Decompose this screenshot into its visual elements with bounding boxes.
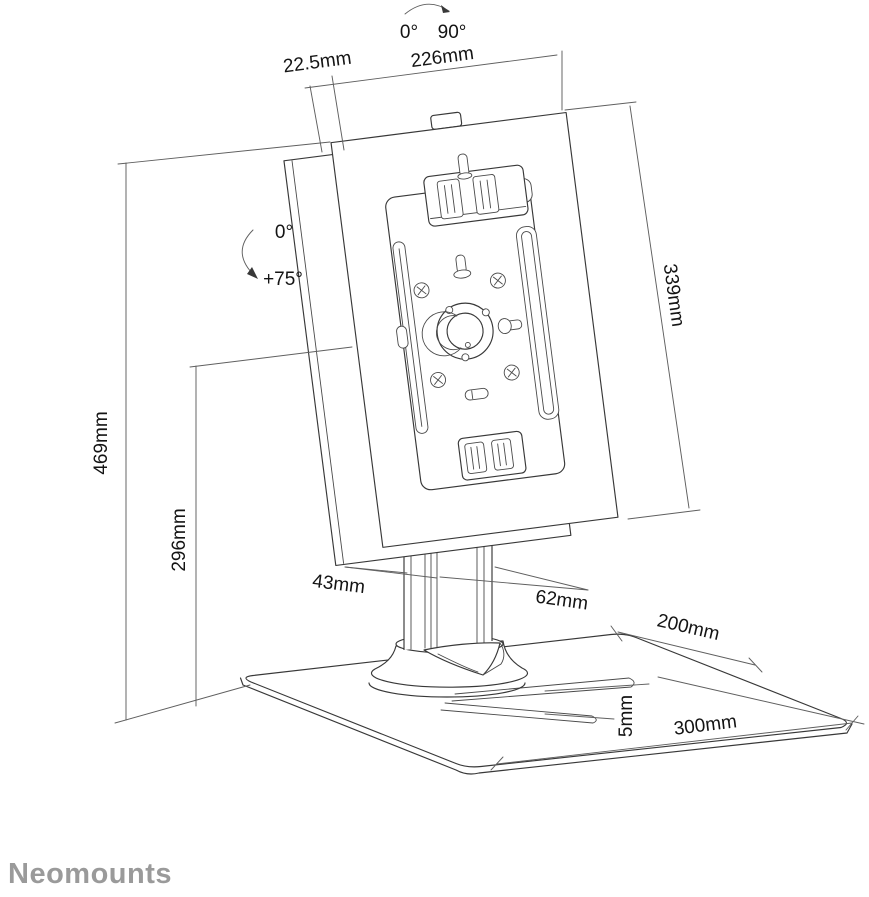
bottom-clamp-grip xyxy=(491,438,514,470)
pole xyxy=(404,540,492,650)
swivel-arrowhead xyxy=(441,5,450,13)
dim-225-tick xyxy=(310,86,322,152)
dim-label-pole-depth: 43mm xyxy=(311,571,366,598)
stand-diagram: 0° 90° 0° +75° 22.5mm 226mm 339mm 469mm … xyxy=(0,0,869,897)
dim-300-tick xyxy=(846,716,858,730)
dim-339-ext-bottom xyxy=(628,510,700,519)
base-plate-top-face xyxy=(246,634,847,767)
baseline-extension xyxy=(115,685,250,723)
dim-225-tick xyxy=(332,76,344,150)
dim-label-pole-width: 62mm xyxy=(534,586,589,614)
tilt-from-label: 0° xyxy=(275,222,293,243)
dim-label-base-thickness: 5mm xyxy=(616,695,637,737)
dim-label-enclosure-width: 226mm xyxy=(410,43,476,72)
tilt-arc xyxy=(242,230,256,277)
flange-bump xyxy=(461,353,469,361)
flange-bump xyxy=(482,308,490,316)
technical-drawing-page: 0° 90° 0° +75° 22.5mm 226mm 339mm 469mm … xyxy=(0,0,869,897)
brand-logo: Neomounts xyxy=(8,858,172,891)
tilt-to-label: +75° xyxy=(263,269,303,290)
dim-label-enclosure-depth: 22.5mm xyxy=(282,48,353,78)
swivel-to-label: 90° xyxy=(438,22,467,43)
dim-200-tick xyxy=(749,658,762,672)
bottom-clamp xyxy=(458,431,527,481)
pole-body xyxy=(404,540,492,650)
dim-339-ext-top xyxy=(565,102,636,110)
bottom-clamp-grip xyxy=(464,442,487,474)
base-plate xyxy=(241,634,853,774)
tablet-enclosure xyxy=(281,99,620,566)
top-clamp-grip xyxy=(473,174,500,214)
dim-label-hub-height: 296mm xyxy=(169,508,190,571)
dim-label-enclosure-height: 339mm xyxy=(659,262,689,328)
top-clamp-grip xyxy=(437,179,464,219)
dim-label-base-depth: 200mm xyxy=(655,610,721,645)
swivel-from-label: 0° xyxy=(400,22,418,43)
dim-label-total-height: 469mm xyxy=(91,411,112,474)
